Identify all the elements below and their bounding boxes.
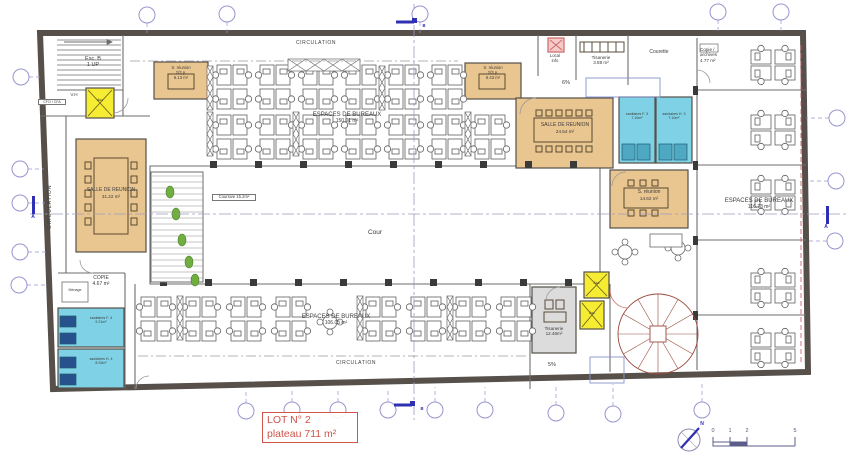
label-menage: Ménage xyxy=(62,288,88,292)
scale-bar xyxy=(713,437,795,446)
label-courette: Courette xyxy=(632,50,686,56)
label-s-reunion-b: S. réunion 2/3 p. 6.43 m² xyxy=(465,66,521,81)
label-cour: Cour xyxy=(355,229,395,237)
label-esc-b: Esc. B 1 UP xyxy=(72,56,114,69)
label-salle-reunion-b: SALLE DE REUNION 31.22 m² xyxy=(78,188,144,199)
label-ramp-top: 6% xyxy=(556,80,576,86)
label-north: N xyxy=(697,422,707,428)
label-salle-reunion-a: SALLE DE REUNION 24.54 m² xyxy=(520,123,610,134)
label-ramp-bottom: 5% xyxy=(542,362,562,368)
label-espaces-bottom: ESPACES DE BUREAUX 106.05 m² xyxy=(288,314,384,327)
label-asc-3: Asc xyxy=(580,311,604,315)
label-circulation-top: CIRCULATION xyxy=(280,41,352,47)
floorplan-drawing xyxy=(0,0,850,458)
scale-tick-0: 0 xyxy=(709,428,717,434)
scale-tick-2: 2 xyxy=(743,428,751,434)
label-asc-1: Asc xyxy=(86,98,114,102)
label-espaces-top: ESPACES DE BUREAUX 150.01 m² xyxy=(295,112,399,125)
spiral-staircase xyxy=(618,294,698,374)
label-cfo-cfa: CFO / CFA xyxy=(38,99,66,105)
label-asc-2: Asc xyxy=(584,281,609,285)
label-sanitaires-h3: sanitaires H. 3 7.10m² xyxy=(657,112,691,120)
label-s-reunion-c: S. réunion 14.62 m² xyxy=(614,190,684,201)
label-s-reunion-a: S. réunion 2/3 p. 6.13 m² xyxy=(154,66,208,81)
label-copie: COPIE 4.67 m² xyxy=(78,276,124,288)
section-marker-b-top: B xyxy=(419,24,429,29)
lot-area: plateau 711 m² xyxy=(267,428,353,442)
label-tisanerie-bottom: Tisanerie 12.46m² xyxy=(532,326,576,337)
label-sanitaires-f4: sanitaires F. 4 9.21m² xyxy=(80,316,122,324)
label-tisanerie-top: Tisanerie 3.88 m² xyxy=(578,55,624,66)
section-marker-a-right: A xyxy=(820,225,832,231)
label-vh: V.H xyxy=(64,92,84,97)
stair-central xyxy=(151,172,203,286)
label-circulation-bottom: CIRCULATION xyxy=(320,361,392,367)
lot-number: LOT N° 2 xyxy=(267,414,353,428)
section-marker-a-left: A xyxy=(27,215,39,221)
scale-tick-1: 1 xyxy=(726,428,734,434)
label-coursive: Coursive 15.2m² xyxy=(212,194,256,201)
section-marker-b-bottom: B xyxy=(417,407,427,412)
label-sanitaires-f3: sanitaires F. 3 7.10m² xyxy=(620,112,654,120)
label-circulation-left: CIRCULATION xyxy=(48,170,60,244)
north-arrow-icon xyxy=(678,428,700,451)
label-local-info: Local info xyxy=(542,54,568,64)
scale-tick-5: 5 xyxy=(791,428,799,434)
floor-plan: CIRCULATION CIRCULATION CIRCULATION Cour… xyxy=(0,0,850,458)
room-tisanerie-bottom xyxy=(532,287,576,353)
label-copie-archives: Copie / archives 4.77 m² xyxy=(700,47,744,63)
lot-title-box: LOT N° 2 plateau 711 m² xyxy=(262,412,358,443)
label-sanitaires-h4: sanitaires H. 4 8.93m² xyxy=(80,357,122,365)
label-espaces-right: ESPACES DE BUREAUX 116.73 m² xyxy=(710,198,808,211)
